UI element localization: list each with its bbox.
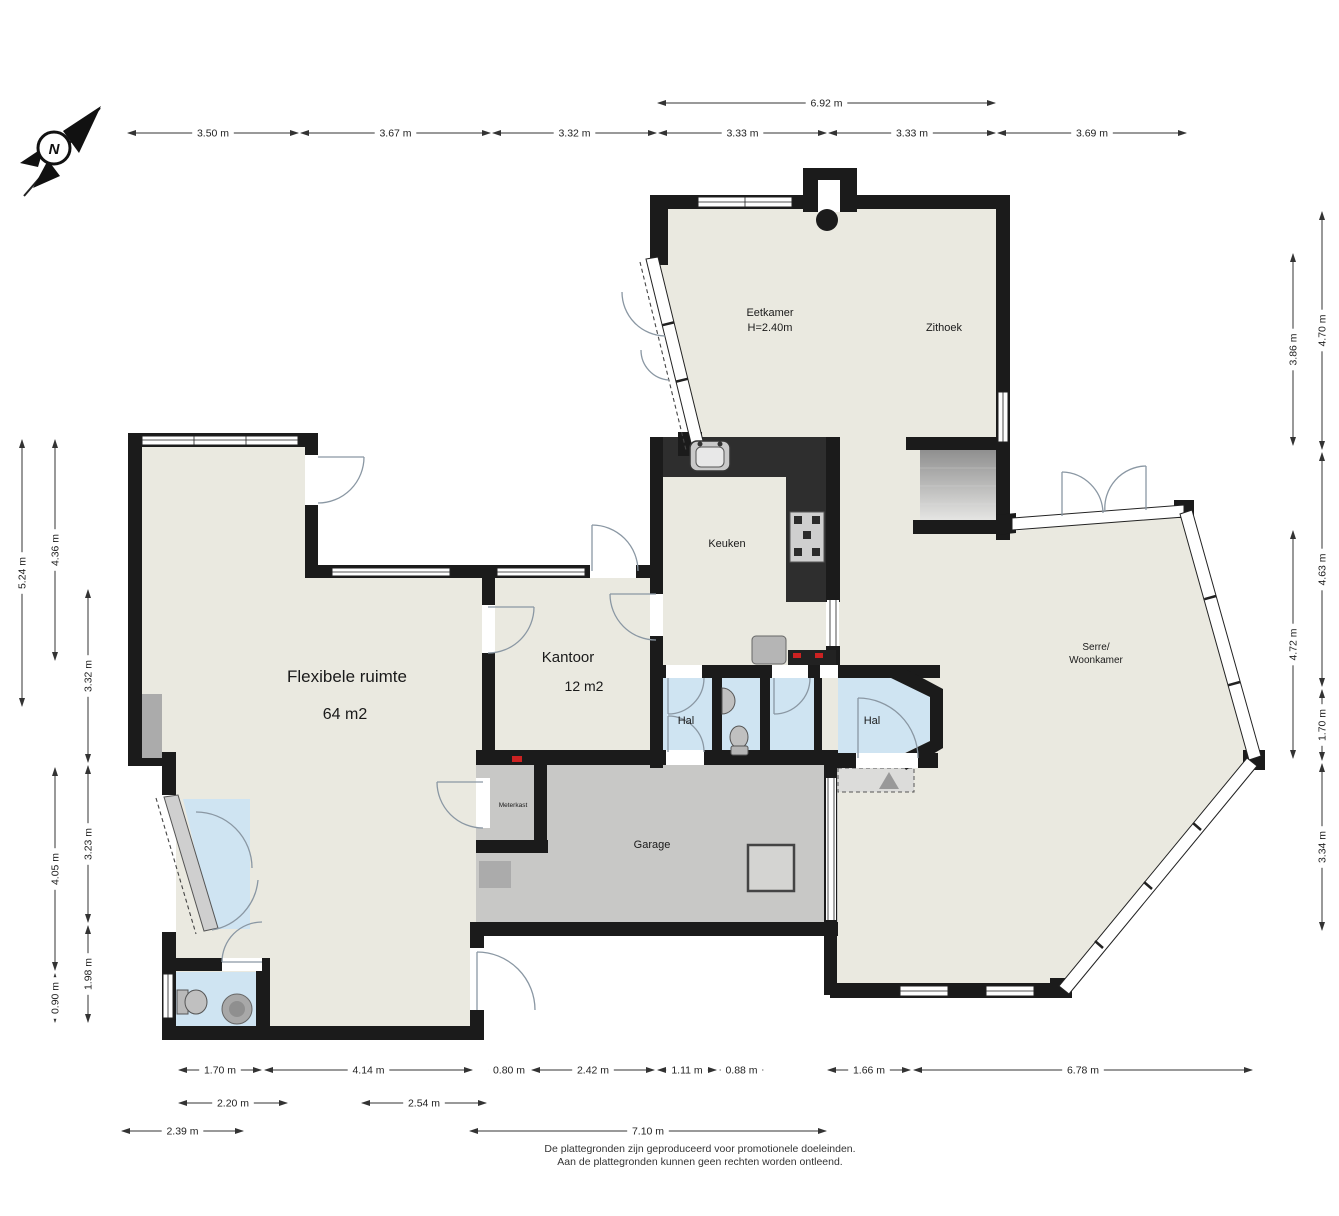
dimension: 3.86 m [1287, 254, 1300, 445]
dimension: 1.98 m [82, 926, 95, 1022]
dimension-label: 3.67 m [379, 128, 411, 140]
dimension-label: 2.39 m [166, 1126, 198, 1138]
window [142, 436, 298, 445]
dimension-label: 1.70 m [1317, 709, 1329, 741]
garage-cabinet [479, 861, 511, 888]
disclaimer-line-1: De plattegronden zijn geproduceerd voor … [380, 1143, 1020, 1156]
dimension: 6.78 m [914, 1064, 1252, 1077]
dimension: 1.66 m [828, 1064, 910, 1077]
dimension-label: 4.14 m [352, 1065, 384, 1077]
dimension: 3.32 m [82, 590, 95, 762]
dimension-label: 3.32 m [558, 128, 590, 140]
dimension-label: 6.92 m [810, 98, 842, 110]
dimension: 2.54 m [362, 1097, 486, 1110]
dimension-label: 1.11 m [671, 1065, 703, 1077]
room-label-garage: Garage [634, 839, 671, 851]
dimension-label: 0.90 m [50, 982, 62, 1014]
dimension: 3.23 m [82, 766, 95, 922]
dimension: 0.80 m [488, 1064, 530, 1077]
disclaimer-line-2: Aan de plattegronden kunnen geen rechten… [380, 1156, 1020, 1169]
dimension-label: 2.54 m [408, 1098, 440, 1110]
dimension-label: 1.70 m [204, 1065, 236, 1077]
dimension-label: 3.50 m [197, 128, 229, 140]
dimension-label: 2.20 m [217, 1098, 249, 1110]
dimension: 4.36 m [49, 440, 62, 660]
dimension: 1.70 m [1316, 690, 1329, 760]
kitchen-sink-icon [690, 441, 730, 471]
dimension-label: 1.66 m [853, 1065, 885, 1077]
dimension: 4.14 m [265, 1064, 472, 1077]
dimension: 3.69 m [998, 127, 1186, 140]
room-label-kantoor-area: 12 m2 [565, 678, 604, 694]
floors-layer [135, 202, 1254, 1035]
dimension-label: 3.69 m [1076, 128, 1108, 140]
dimension: 2.39 m [122, 1125, 243, 1138]
floorplan-page: N 6.92 m3.50 m3.67 m3.32 m3.33 m3.33 m3.… [0, 0, 1339, 1216]
room-label-keuken: Keuken [708, 538, 745, 550]
garage-skylight [748, 845, 794, 891]
dimension-label: 4.36 m [50, 534, 62, 566]
room-label-flex-area: 64 m2 [323, 706, 368, 723]
dimension: 0.88 m [720, 1064, 763, 1077]
dimension-label: 4.63 m [1317, 553, 1329, 585]
dimension: 5.24 m [16, 440, 29, 706]
dimension-label: 4.72 m [1288, 628, 1300, 660]
flex-cabinet [142, 694, 162, 758]
compass-north-label: N [49, 141, 61, 158]
porch [838, 768, 914, 792]
boiler-icon [752, 636, 786, 664]
dimension-label: 1.98 m [83, 958, 95, 990]
dimension: 3.34 m [1316, 764, 1329, 930]
dimension: 6.92 m [658, 97, 995, 110]
dimension-label: 3.23 m [83, 828, 95, 860]
dimension-label: 6.78 m [1067, 1065, 1099, 1077]
room-label-flexibele-ruimte: Flexibele ruimte [287, 667, 407, 686]
compass-icon: N [20, 106, 101, 196]
sliding-door [827, 600, 839, 646]
flue-icon [816, 209, 838, 231]
disclaimer: De plattegronden zijn geproduceerd voor … [380, 1143, 1020, 1169]
dimension-label: 2.42 m [577, 1065, 609, 1077]
dimension-label: 3.33 m [726, 128, 758, 140]
room-label-zithoek: Zithoek [926, 322, 963, 334]
room-label-hal-2: Hal [864, 715, 881, 727]
dimension-label: 3.86 m [1288, 333, 1300, 365]
stove-icon [790, 512, 824, 562]
dimension: 4.72 m [1287, 531, 1300, 758]
staircase [920, 450, 998, 521]
shower-drain-icon [222, 994, 252, 1024]
dimension-label: 7.10 m [632, 1126, 664, 1138]
dimension: 3.33 m [659, 127, 826, 140]
dimension: 3.32 m [493, 127, 656, 140]
dimension-label: 4.70 m [1317, 314, 1329, 346]
dimension: 3.50 m [128, 127, 298, 140]
dimension: 1.11 m [658, 1064, 716, 1077]
garage-door [826, 778, 836, 920]
room-hal-closet-floor [770, 677, 814, 756]
dimension: 4.63 m [1316, 453, 1329, 686]
dimension: 2.42 m [532, 1064, 654, 1077]
dimension-label: 5.24 m [17, 557, 29, 589]
floorplan-drawing: N 6.92 m3.50 m3.67 m3.32 m3.33 m3.33 m3.… [0, 0, 1339, 1216]
dimension-label: 4.05 m [50, 853, 62, 885]
dimension-label: 3.32 m [83, 660, 95, 692]
dimension: 3.33 m [829, 127, 995, 140]
dimension-label: 3.33 m [896, 128, 928, 140]
dimension: 7.10 m [470, 1125, 826, 1138]
dimension: 3.67 m [301, 127, 490, 140]
bathroom-toilet-icon [177, 990, 207, 1014]
dimension-label: 3.34 m [1317, 831, 1329, 863]
room-label-meterkast: Meterkast [499, 802, 528, 809]
room-label-kantoor: Kantoor [542, 649, 595, 666]
dimension: 2.20 m [179, 1097, 287, 1110]
dimension: 1.70 m [179, 1064, 261, 1077]
dimension-label: 0.80 m [493, 1065, 525, 1077]
dimension-label: 0.88 m [725, 1065, 757, 1077]
dimension: 4.05 m [49, 768, 62, 970]
dimension: 0.90 m [49, 974, 62, 1022]
room-label-hal-1: Hal [678, 715, 695, 727]
dimension: 4.70 m [1316, 212, 1329, 449]
wc-toilet-icon [730, 726, 748, 755]
